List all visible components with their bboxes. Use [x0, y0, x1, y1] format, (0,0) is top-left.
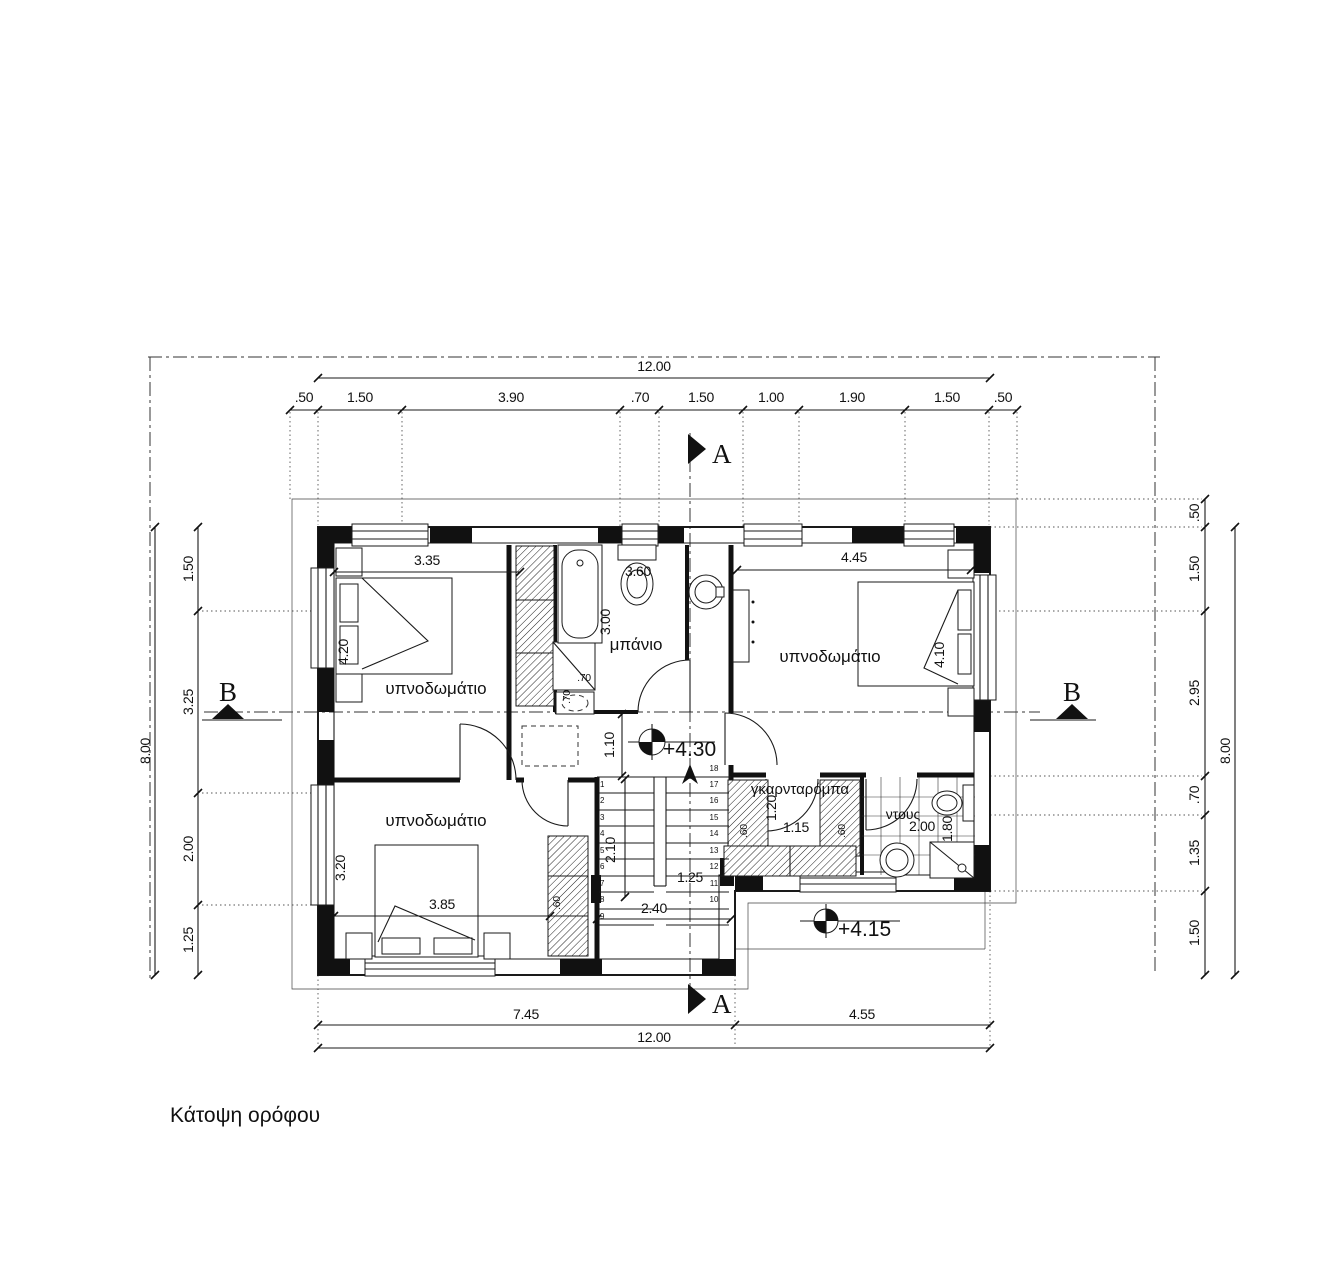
- window: [311, 785, 334, 905]
- dim-right-5: 1.50: [1186, 919, 1202, 946]
- level-value-hall: +4.30: [663, 738, 716, 761]
- dim-duct-d: .70: [561, 690, 573, 704]
- dim-stair-flight: 1.25: [677, 869, 704, 885]
- dim-right-1: 1.50: [1186, 555, 1202, 582]
- window: [311, 568, 334, 668]
- drawing-title: Κάτοψη ορόφου: [170, 1104, 320, 1127]
- section-letter-a-bottom: A: [712, 989, 732, 1019]
- floor-plan-drawing: 1 2 3 4 5 6 7 8 9 18 17 16 15 14 13 12 1…: [0, 0, 1320, 1284]
- label-shower: ντους: [886, 806, 921, 822]
- dim-top-7: 1.50: [934, 389, 961, 405]
- dim-top-4: 1.50: [688, 389, 715, 405]
- window: [744, 524, 802, 546]
- dim-top-6: 1.90: [839, 389, 866, 405]
- dim-duct-w: .70: [577, 672, 591, 684]
- dim-bottom-total: 12.00: [637, 1029, 671, 1045]
- dim-left-total: 8.00: [137, 737, 153, 764]
- dim-top-8: .50: [994, 389, 1013, 405]
- stair-number: 10: [710, 895, 719, 904]
- section-arrow-a-bottom: [688, 984, 706, 1014]
- dim-bed3-w: 3.85: [429, 896, 456, 912]
- stair-number: 7: [600, 879, 605, 888]
- stair-number: 13: [710, 846, 719, 855]
- shower-tray: [930, 842, 974, 878]
- window: [365, 956, 495, 976]
- stair-number: 18: [710, 764, 719, 773]
- dim-top-3: .70: [631, 389, 650, 405]
- dim-bottom-0: 7.45: [513, 1006, 540, 1022]
- nightstand: [336, 674, 362, 702]
- stair-number: 8: [600, 895, 605, 904]
- dim-stair-run: 2.10: [602, 836, 618, 863]
- dim-right-total: 8.00: [1217, 737, 1233, 764]
- nightstand: [484, 933, 510, 959]
- nightstand: [948, 550, 974, 578]
- dim-top-1: 1.50: [347, 389, 374, 405]
- section-arrow-a-top: [688, 434, 706, 464]
- dim-top-2: 3.90: [498, 389, 525, 405]
- stair-number: 3: [600, 813, 605, 822]
- dim-ward-w: 1.15: [783, 819, 810, 835]
- window: [973, 575, 996, 700]
- label-wardrobe: γκαρνταρόμπα: [751, 781, 850, 798]
- label-bedroom-bottom-left: υπνοδωμάτιο: [385, 811, 486, 830]
- dim-bottom-1: 4.55: [849, 1006, 876, 1022]
- dim-ward-c1: .60: [738, 824, 750, 838]
- dim-shower-d: 1.80: [939, 815, 955, 842]
- window: [622, 524, 658, 546]
- dim-stair-w: 2.40: [641, 900, 668, 916]
- dim-ward-d: 1.20: [763, 794, 779, 821]
- dim-closet3: .60: [551, 896, 563, 910]
- furniture-bedroom-top-right: [733, 550, 974, 716]
- section-markers: A A B B: [202, 434, 1096, 1019]
- bed: [858, 582, 974, 686]
- section-letter-b-right: B: [1063, 677, 1081, 707]
- stair-number: 11: [710, 879, 719, 888]
- label-bedroom-top-left: υπνοδωμάτιο: [385, 679, 486, 698]
- stair-number: 1: [600, 780, 605, 789]
- dim-right-4: 1.35: [1186, 839, 1202, 866]
- washbasin: [880, 843, 914, 877]
- nightstand: [346, 933, 372, 959]
- nightstand: [948, 688, 974, 716]
- stair-number: 14: [710, 829, 719, 838]
- level-value-stair: +4.15: [838, 918, 891, 941]
- stair-number: 9: [600, 912, 605, 921]
- door-bedroom2: [725, 713, 777, 765]
- dim-bed1-w: 3.35: [414, 552, 441, 568]
- dim-top-5: 1.00: [758, 389, 785, 405]
- dim-right-3: .70: [1186, 785, 1202, 804]
- dim-bath-fix: 3.60: [625, 563, 652, 579]
- stair-number: 12: [710, 862, 719, 871]
- level-marker-stair: +4.15: [800, 904, 900, 941]
- window: [904, 524, 954, 546]
- stair-number: 2: [600, 796, 605, 805]
- bathtub: [558, 545, 602, 643]
- washbasin: [689, 575, 724, 609]
- dim-ward-c2: .60: [836, 824, 848, 838]
- dim-left-1: 3.25: [180, 688, 196, 715]
- dim-bed1-d: 4.20: [335, 638, 351, 665]
- dim-bed3-d: 3.20: [332, 854, 348, 881]
- dim-bed2-d: 4.10: [931, 641, 947, 668]
- stair-number: 15: [710, 813, 719, 822]
- door-bathroom: [638, 660, 690, 712]
- label-bedroom-top-right: υπνοδωμάτιο: [779, 647, 880, 666]
- dim-top-0: .50: [295, 389, 314, 405]
- dim-left-2: 2.00: [180, 835, 196, 862]
- door-bedroom3: [522, 780, 568, 826]
- floor-plan-sheet: 1 2 3 4 5 6 7 8 9 18 17 16 15 14 13 12 1…: [0, 0, 1320, 1284]
- dim-left-3: 1.25: [180, 926, 196, 953]
- hall-dashed-opening: [522, 726, 578, 766]
- dim-left-0: 1.50: [180, 555, 196, 582]
- level-marker-hall: +4.30: [628, 724, 716, 761]
- dim-right-2: 2.95: [1186, 679, 1202, 706]
- shelf-unit: [733, 590, 755, 662]
- dim-top-total: 12.00: [637, 358, 671, 374]
- dim-bath-d: 3.00: [597, 608, 613, 635]
- stair-number: 16: [710, 796, 719, 805]
- section-letter-a-top: A: [712, 439, 732, 469]
- label-bathroom: μπάνιο: [610, 635, 663, 654]
- stair-direction-arrow: [682, 764, 698, 784]
- dim-bed2-w: 4.45: [841, 549, 868, 565]
- stair-number: 17: [710, 780, 719, 789]
- section-letter-b-left: B: [219, 677, 237, 707]
- stair-number: 4: [600, 829, 605, 838]
- dim-hall: 1.10: [601, 731, 617, 758]
- dim-right-0: .50: [1186, 503, 1202, 522]
- window: [352, 524, 428, 546]
- bathroom-fixtures: [558, 545, 724, 643]
